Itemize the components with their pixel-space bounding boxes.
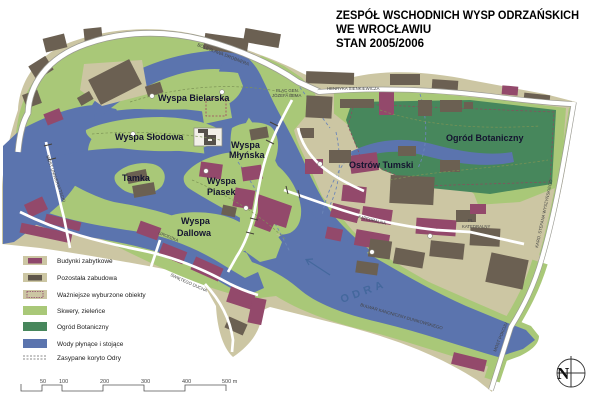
svg-text:ZESPÓŁ WSCHODNICH WYSP ODRZAŃS: ZESPÓŁ WSCHODNICH WYSP ODRZAŃSKICH <box>336 9 579 22</box>
svg-text:50: 50 <box>40 379 46 385</box>
svg-text:Budynki zabytkowe: Budynki zabytkowe <box>57 258 113 265</box>
svg-text:Wyspa: Wyspa <box>181 216 211 226</box>
svg-text:Skwery, zieleńce: Skwery, zieleńce <box>57 308 106 315</box>
svg-text:N: N <box>557 364 570 383</box>
svg-text:Wody płynące i stojące: Wody płynące i stojące <box>57 341 124 348</box>
svg-text:Młyńska: Młyńska <box>229 150 266 160</box>
svg-text:100: 100 <box>59 379 68 385</box>
svg-text:400: 400 <box>182 379 191 385</box>
svg-text:Pozostała zabudowa: Pozostała zabudowa <box>57 275 117 282</box>
svg-text:Tamka: Tamka <box>122 173 151 183</box>
svg-text:Wyspa: Wyspa <box>207 176 237 186</box>
svg-text:Ogród Botaniczny: Ogród Botaniczny <box>446 133 524 143</box>
svg-text:500 m: 500 m <box>222 379 238 385</box>
svg-text:Ważniejsze wyburzone obiekty: Ważniejsze wyburzone obiekty <box>57 292 146 299</box>
svg-text:Zasypane koryto Odry: Zasypane koryto Odry <box>57 355 122 362</box>
svg-text:Wyspa Bielarska: Wyspa Bielarska <box>158 93 230 103</box>
svg-text:Wyspa Słodowa: Wyspa Słodowa <box>115 132 184 142</box>
svg-text:Piasek: Piasek <box>207 187 237 197</box>
svg-text:Ogród Botaniczny: Ogród Botaniczny <box>57 324 109 331</box>
svg-text:Wyspa: Wyspa <box>231 140 261 150</box>
svg-text:PL.: PL. <box>468 218 474 223</box>
svg-text:Ostrów Tumski: Ostrów Tumski <box>349 160 413 170</box>
svg-text:JÓZEFA BEMA: JÓZEFA BEMA <box>272 93 302 98</box>
svg-text:KATEDRALNY: KATEDRALNY <box>462 224 490 229</box>
svg-text:WE WROCŁAWIU: WE WROCŁAWIU <box>336 24 431 36</box>
svg-text:300: 300 <box>141 379 150 385</box>
svg-text:HENRYKA SIENKIEWICZA: HENRYKA SIENKIEWICZA <box>327 86 380 91</box>
svg-text:STAN 2005/2006: STAN 2005/2006 <box>336 38 424 50</box>
svg-text:Dallowa: Dallowa <box>177 228 212 238</box>
svg-text:200: 200 <box>100 379 109 385</box>
